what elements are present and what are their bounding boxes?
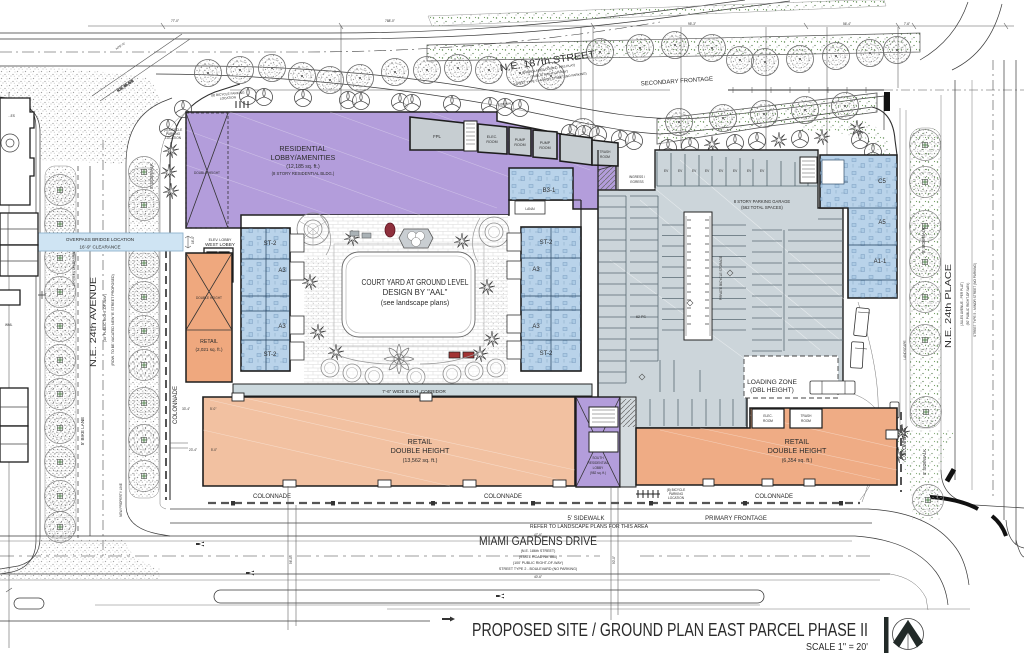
- svg-text:(982 sq. ft.): (982 sq. ft.): [590, 471, 606, 475]
- svg-text:ROOM: ROOM: [801, 419, 811, 423]
- svg-text:LOBBY/AMENITIES: LOBBY/AMENITIES: [271, 153, 336, 162]
- svg-text:A3: A3: [532, 324, 540, 330]
- svg-text:62 PS: 62 PS: [636, 315, 646, 319]
- svg-text:(13,562 sq. ft.): (13,562 sq. ft.): [403, 458, 438, 464]
- svg-text:(8 STORY RESIDENTIAL BLDG.): (8 STORY RESIDENTIAL BLDG.): [272, 171, 335, 176]
- svg-text:5'-0": 5'-0": [210, 407, 216, 411]
- svg-text:COURT YARD AT GROUND LEVEL: COURT YARD AT GROUND LEVEL: [362, 278, 470, 287]
- svg-text:ST-2: ST-2: [540, 351, 553, 357]
- svg-text:(2,021 sq. ft.): (2,021 sq. ft.): [195, 347, 223, 352]
- svg-text:DOUBLE HEIGHT: DOUBLE HEIGHT: [194, 171, 220, 175]
- svg-text:16'-0": 16'-0": [191, 236, 195, 244]
- svg-text:47'-6": 47'-6": [534, 533, 542, 537]
- svg-text:LOCATION: LOCATION: [668, 496, 685, 500]
- svg-text:5' BIKE LANE: 5' BIKE LANE: [80, 417, 85, 445]
- svg-text:C5: C5: [878, 179, 886, 185]
- svg-text:PUMP: PUMP: [540, 141, 551, 145]
- svg-text:RETAIL: RETAIL: [200, 339, 218, 345]
- svg-text:PRIMARY FRONTAGE: PRIMARY FRONTAGE: [705, 516, 767, 522]
- svg-text:RETAIL: RETAIL: [785, 437, 810, 446]
- svg-text:788'-0": 788'-0": [385, 19, 395, 23]
- svg-text:8' SIDEWALK: 8' SIDEWALK: [149, 163, 154, 189]
- svg-text:(JULES AVENUE - PER PLAT): (JULES AVENUE - PER PLAT): [960, 282, 964, 326]
- svg-text:FPL: FPL: [433, 134, 441, 139]
- svg-text:ELEC.: ELEC.: [487, 135, 497, 139]
- svg-text:16'-9" CLEARANCE: 16'-9" CLEARANCE: [79, 245, 120, 250]
- svg-text:TRASH: TRASH: [600, 150, 612, 154]
- svg-text:(30' PUBLIC RIGHT-OF-WAY): (30' PUBLIC RIGHT-OF-WAY): [103, 294, 107, 342]
- svg-text:DOUBLE HEIGHT: DOUBLE HEIGHT: [391, 446, 450, 455]
- svg-text:ST-2: ST-2: [264, 352, 277, 358]
- svg-text:(6,354 sq. ft.): (6,354 sq. ft.): [782, 458, 813, 464]
- svg-text:SOUTH: SOUTH: [592, 456, 604, 460]
- svg-text:(100' PUBLIC RIGHT-OF-WAY): (100' PUBLIC RIGHT-OF-WAY): [513, 561, 563, 565]
- svg-text:DOUBLE HEIGHT: DOUBLE HEIGHT: [196, 296, 222, 300]
- svg-text:INGRESS /: INGRESS /: [629, 175, 645, 179]
- svg-text:RESIDENTIAL: RESIDENTIAL: [279, 144, 326, 153]
- svg-text:STREET TYPE 5 - MINOR STREET (: STREET TYPE 5 - MINOR STREET (NO PARKING…: [973, 263, 977, 337]
- svg-text:EGRESS: EGRESS: [630, 180, 643, 184]
- svg-text:5'-0": 5'-0": [211, 448, 217, 452]
- svg-text:(562 TOTAL SPACES): (562 TOTAL SPACES): [741, 205, 783, 210]
- svg-text:PUMP: PUMP: [515, 138, 526, 142]
- svg-text:REFER TO LANDSCAPE PLANS FOR T: REFER TO LANDSCAPE PLANS FOR THIS AREA: [530, 524, 649, 530]
- svg-text:ST-2: ST-2: [540, 240, 553, 246]
- svg-text:RETAIL: RETAIL: [408, 437, 433, 446]
- svg-text:56'-4": 56'-4": [843, 22, 851, 26]
- svg-text:COLONNADE: COLONNADE: [902, 427, 908, 460]
- svg-text:MIAMI GARDENS DRIVE: MIAMI GARDENS DRIVE: [479, 536, 597, 548]
- svg-text:8 STORY PARKING GARAGE: 8 STORY PARKING GARAGE: [734, 199, 791, 204]
- svg-text:ST-2: ST-2: [264, 241, 277, 247]
- svg-text:(N.E. 186th STREET): (N.E. 186th STREET): [521, 549, 556, 553]
- svg-text:A5: A5: [878, 220, 886, 226]
- svg-text:33'-4": 33'-4": [182, 407, 190, 411]
- svg-text:B3-1: B3-1: [543, 188, 556, 194]
- svg-text:56'-0": 56'-0": [289, 556, 293, 564]
- svg-text:ROOM: ROOM: [514, 143, 525, 147]
- svg-text:(12,185 sq. ft.): (12,185 sq. ft.): [286, 164, 320, 170]
- svg-text:50'-0": 50'-0": [612, 556, 616, 564]
- svg-text:...ES: ...ES: [8, 114, 15, 118]
- svg-text:COLONNADE: COLONNADE: [173, 386, 179, 424]
- svg-text:OVERPASS BRIDGE LOCATION: OVERPASS BRIDGE LOCATION: [66, 237, 134, 242]
- svg-text:RESIDENTIAL: RESIDENTIAL: [588, 461, 609, 465]
- svg-text:A3: A3: [532, 267, 540, 273]
- svg-text:WML: WML: [5, 323, 13, 327]
- svg-text:(ROW. TO BE VACATED NEW 'B' ST: (ROW. TO BE VACATED NEW 'B' STREET PROPO…: [111, 274, 115, 366]
- svg-text:(STATE ROAD No. 860): (STATE ROAD No. 860): [519, 555, 557, 559]
- svg-text:A3: A3: [278, 268, 286, 274]
- svg-text:PRIVATE BICYCLE STORAGE: PRIVATE BICYCLE STORAGE: [719, 256, 723, 300]
- svg-text:95'-3": 95'-3": [688, 22, 696, 26]
- svg-text:ROOM: ROOM: [763, 419, 773, 423]
- svg-text:DESIGN BY "AAL": DESIGN BY "AAL": [383, 288, 448, 297]
- svg-text:COLONNADE: COLONNADE: [755, 494, 793, 500]
- svg-text:LOCATION: LOCATION: [165, 136, 182, 140]
- svg-text:ELEC.: ELEC.: [763, 414, 772, 418]
- svg-text:(50' PUBLIC RIGHT-OF-WAY): (50' PUBLIC RIGHT-OF-WAY): [966, 283, 970, 326]
- svg-text:WEST LOBBY: WEST LOBBY: [205, 242, 235, 247]
- svg-text:LOBBY: LOBBY: [593, 466, 605, 470]
- svg-text:COLONNADE: COLONNADE: [484, 494, 522, 500]
- svg-text:5' SIDEWALK: 5' SIDEWALK: [568, 516, 605, 522]
- svg-text:PROPOSED SITE / GROUND PLAN E: PROPOSED SITE / GROUND PLAN EAST PARCEL …: [472, 620, 868, 640]
- svg-text:77'-0": 77'-0": [171, 19, 179, 23]
- svg-text:SCALE 1" = 20': SCALE 1" = 20': [806, 642, 868, 653]
- svg-text:STREET TYPE 2 - BOULEVARD (NO: STREET TYPE 2 - BOULEVARD (NO PARKING): [499, 567, 577, 571]
- svg-text:7'-6" WIDE B.O.H. CORRIDOR: 7'-6" WIDE B.O.H. CORRIDOR: [382, 389, 446, 394]
- svg-text:NEW PROPERTY LINE: NEW PROPERTY LINE: [119, 483, 123, 517]
- svg-text:A3: A3: [278, 324, 286, 330]
- svg-text:TRASH: TRASH: [801, 414, 813, 418]
- svg-text:23'-4": 23'-4": [189, 448, 197, 452]
- svg-text:LANDSCAPE: LANDSCAPE: [903, 340, 907, 359]
- svg-text:N.E. 24th PLACE: N.E. 24th PLACE: [943, 263, 953, 348]
- svg-text:COLONNADE: COLONNADE: [253, 494, 291, 500]
- svg-text:7'-6": 7'-6": [904, 22, 910, 26]
- svg-text:DOUBLE HEIGHT: DOUBLE HEIGHT: [768, 446, 827, 455]
- svg-text:A1-1: A1-1: [874, 259, 887, 265]
- svg-text:ROOM: ROOM: [539, 146, 550, 150]
- svg-text:8' SIDEWALK: 8' SIDEWALK: [921, 227, 926, 253]
- svg-text:N.E. 24th AVENUE: N.E. 24th AVENUE: [88, 276, 98, 367]
- svg-text:ROOM: ROOM: [486, 140, 497, 144]
- svg-text:8' SIDEWALK: 8' SIDEWALK: [922, 449, 927, 475]
- svg-text:ROOM: ROOM: [600, 155, 610, 159]
- svg-text:(see landscape plans): (see landscape plans): [381, 300, 450, 307]
- svg-text:40'-6": 40'-6": [534, 575, 542, 579]
- svg-text:LANAI: LANAI: [525, 207, 534, 211]
